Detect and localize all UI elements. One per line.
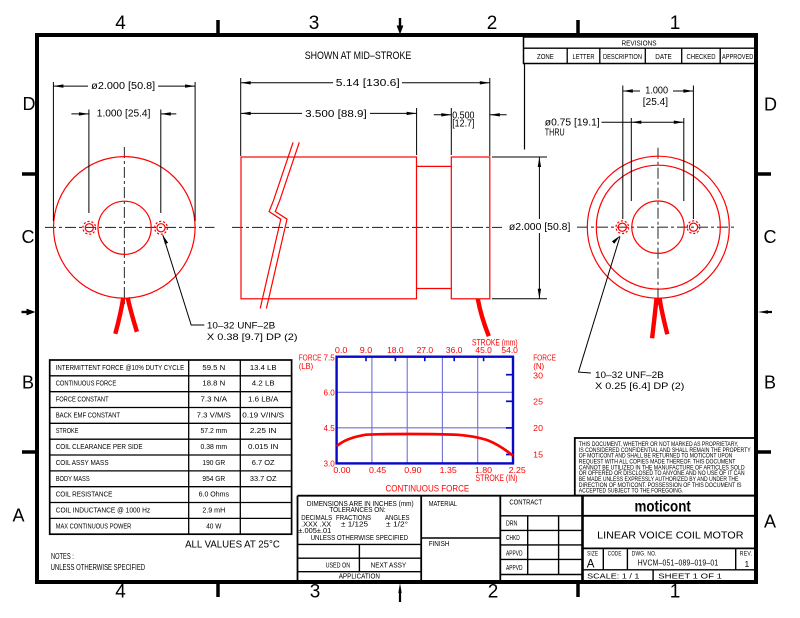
- svg-text:± 1/2°: ± 1/2°: [386, 521, 408, 529]
- svg-text:6.0 Ohms: 6.0 Ohms: [199, 490, 230, 499]
- svg-text:0.38 mm: 0.38 mm: [201, 442, 228, 451]
- svg-text:B: B: [764, 372, 776, 392]
- svg-text:1.6 LB/A: 1.6 LB/A: [248, 395, 279, 404]
- svg-text:5.14 [130.6]: 5.14 [130.6]: [336, 78, 400, 89]
- svg-text:CONTRACT: CONTRACT: [509, 500, 542, 507]
- svg-text:D: D: [764, 95, 777, 115]
- svg-text:1: 1: [745, 559, 750, 569]
- svg-text:BODY MASS: BODY MASS: [56, 474, 90, 483]
- svg-text:20: 20: [533, 424, 543, 433]
- svg-text:STROKE: STROKE: [56, 426, 79, 435]
- svg-text:59.5 N: 59.5 N: [202, 363, 225, 372]
- svg-text:30: 30: [533, 371, 543, 380]
- svg-text:0.90: 0.90: [404, 466, 422, 475]
- svg-text:1: 1: [670, 581, 681, 602]
- svg-text:COIL CLEARANCE PER SIDE: COIL CLEARANCE PER SIDE: [56, 442, 143, 451]
- svg-text:[25.4]: [25.4]: [643, 97, 668, 108]
- svg-text:SHOWN AT MID–STROKE: SHOWN AT MID–STROKE: [305, 50, 412, 62]
- svg-text:BACK EMF CONSTANT: BACK EMF CONSTANT: [56, 410, 121, 419]
- svg-text:57.2 mm: 57.2 mm: [201, 426, 228, 435]
- svg-text:18.0: 18.0: [387, 346, 404, 355]
- svg-text:STROKE (mm): STROKE (mm): [472, 338, 518, 348]
- svg-text:ø2.000 [50.8]: ø2.000 [50.8]: [91, 81, 155, 92]
- svg-text:MATERIAL: MATERIAL: [429, 501, 457, 508]
- svg-text:STROKE (IN): STROKE (IN): [476, 473, 518, 483]
- svg-text:4: 4: [115, 581, 126, 602]
- svg-text:APPROVED: APPROVED: [722, 54, 753, 61]
- svg-text:2: 2: [488, 581, 499, 602]
- svg-text:TOLERANCES ON:: TOLERANCES ON:: [329, 507, 385, 514]
- svg-text:2.25 IN: 2.25 IN: [250, 426, 277, 435]
- svg-text:FINISH: FINISH: [429, 541, 450, 548]
- svg-text:UNLESS OTHERWISE SPECIFIED: UNLESS OTHERWISE SPECIFIED: [311, 535, 409, 542]
- svg-text:ACCEPTED SUBJECT TO THE FOREGO: ACCEPTED SUBJECT TO THE FOREGOING.: [579, 488, 684, 495]
- svg-text:DESCRIPTION: DESCRIPTION: [603, 54, 642, 61]
- svg-text:4.2 LB: 4.2 LB: [252, 379, 275, 388]
- svg-text:THRU: THRU: [545, 128, 565, 139]
- svg-text:C: C: [764, 227, 777, 247]
- svg-text:CHECKED: CHECKED: [687, 54, 716, 61]
- svg-text:13.4 LB: 13.4 LB: [250, 363, 277, 372]
- svg-text:ALL VALUES AT 25°C: ALL VALUES AT 25°C: [185, 538, 280, 550]
- svg-text:CONTINUOUS FORCE: CONTINUOUS FORCE: [386, 483, 470, 493]
- svg-text:27.0: 27.0: [417, 346, 434, 355]
- svg-text:3: 3: [309, 13, 320, 34]
- svg-text:9.0: 9.0: [360, 346, 373, 355]
- svg-text:NOTES :: NOTES :: [51, 552, 74, 561]
- svg-text:7.3 N/A: 7.3 N/A: [201, 395, 228, 404]
- svg-text:10–32 UNF–2B: 10–32 UNF–2B: [207, 320, 275, 331]
- svg-text:B: B: [22, 372, 34, 392]
- svg-text:REVISIONS: REVISIONS: [622, 41, 657, 48]
- svg-text:DRN: DRN: [506, 520, 517, 527]
- svg-text:COIL RESISTANCE: COIL RESISTANCE: [56, 490, 113, 499]
- svg-text:40 W: 40 W: [206, 521, 221, 530]
- svg-text:36.0: 36.0: [446, 346, 463, 355]
- svg-text:7.3 V/M/S: 7.3 V/M/S: [197, 410, 231, 419]
- svg-text:(N): (N): [533, 362, 544, 371]
- svg-text:10–32 UNF–2B: 10–32 UNF–2B: [595, 369, 664, 380]
- svg-text:1.35: 1.35: [440, 466, 458, 475]
- svg-text:1: 1: [670, 13, 681, 34]
- svg-text:C: C: [22, 227, 35, 247]
- svg-text:CHKD: CHKD: [506, 535, 520, 542]
- svg-text:(LB): (LB): [299, 362, 314, 371]
- svg-text:COIL INDUCTANCE @ 1000 Hz: COIL INDUCTANCE @ 1000 Hz: [56, 505, 151, 514]
- svg-text:D: D: [23, 94, 36, 114]
- svg-text:CODE: CODE: [608, 550, 622, 557]
- svg-text:6.0: 6.0: [324, 388, 336, 397]
- svg-text:3.500 [88.9]: 3.500 [88.9]: [305, 109, 367, 120]
- svg-text:2: 2: [487, 13, 498, 34]
- svg-text:1.000 [25.4]: 1.000 [25.4]: [97, 109, 151, 120]
- svg-text:DATE: DATE: [655, 54, 672, 61]
- svg-text:ø2.000 [50.8]: ø2.000 [50.8]: [509, 222, 571, 233]
- svg-text:954 GR: 954 GR: [202, 474, 225, 483]
- svg-text:LETTER: LETTER: [573, 54, 595, 61]
- svg-text:4: 4: [115, 13, 126, 34]
- svg-text:SCALE: 1 / 1: SCALE: 1 / 1: [587, 571, 639, 580]
- svg-text:25: 25: [533, 397, 543, 406]
- svg-text:6.7 OZ: 6.7 OZ: [252, 458, 275, 467]
- svg-text:moticont: moticont: [635, 499, 691, 516]
- svg-text:15: 15: [533, 451, 543, 460]
- svg-text:UNLESS OTHERWISE SPECIFIED: UNLESS OTHERWISE SPECIFIED: [51, 563, 146, 572]
- svg-text:33.7 OZ: 33.7 OZ: [250, 474, 277, 483]
- svg-text:± 1/125: ± 1/125: [341, 522, 368, 529]
- svg-text:7.5: 7.5: [324, 353, 336, 362]
- svg-text:190 GR: 190 GR: [202, 458, 225, 467]
- svg-text:A: A: [587, 559, 595, 571]
- svg-text:SIZE: SIZE: [587, 550, 598, 557]
- svg-text:COIL ASSY MASS: COIL ASSY MASS: [56, 458, 109, 467]
- svg-text:0.00: 0.00: [333, 466, 351, 475]
- svg-text:CONTINUOUS FORCE: CONTINUOUS FORCE: [56, 379, 117, 388]
- svg-text:USED ON: USED ON: [326, 563, 351, 570]
- svg-text:X 0.25 [6.4] DP (2): X 0.25 [6.4] DP (2): [595, 380, 684, 391]
- svg-text:[12.7]: [12.7]: [452, 118, 474, 129]
- svg-text:A: A: [764, 511, 776, 531]
- svg-text:A: A: [12, 506, 24, 526]
- svg-text:0.015 IN: 0.015 IN: [248, 442, 278, 451]
- svg-text:FORCE CONSTANT: FORCE CONSTANT: [56, 395, 109, 404]
- svg-text:X 0.38 [9.7] DP (2): X 0.38 [9.7] DP (2): [207, 331, 298, 342]
- svg-text:2.9 mH: 2.9 mH: [202, 505, 225, 514]
- svg-text:LINEAR VOICE COIL MOTOR: LINEAR VOICE COIL MOTOR: [597, 530, 743, 541]
- svg-text:4.5: 4.5: [324, 424, 336, 433]
- svg-text:NEXT ASSY: NEXT ASSY: [371, 563, 407, 570]
- svg-text:APPVD: APPVD: [506, 550, 523, 557]
- svg-text:HVCM–051–089–019–01: HVCM–051–089–019–01: [638, 557, 719, 567]
- svg-text:REV.: REV.: [740, 550, 752, 557]
- svg-text:0.45: 0.45: [369, 466, 387, 475]
- svg-text:APPLICATION: APPLICATION: [339, 574, 380, 581]
- svg-text:1.000: 1.000: [645, 86, 668, 97]
- svg-text:ZONE: ZONE: [537, 54, 554, 61]
- svg-text:MAX CONTINUOUS POWER: MAX CONTINUOUS POWER: [56, 521, 132, 530]
- svg-text:0.0: 0.0: [335, 346, 348, 355]
- svg-text:SHEET 1 OF 1: SHEET 1 OF 1: [658, 571, 722, 580]
- svg-text:APPVD: APPVD: [506, 565, 523, 572]
- svg-text:18.8 N: 18.8 N: [202, 379, 225, 388]
- svg-text:INTERMITTENT FORCE @10% DUTY C: INTERMITTENT FORCE @10% DUTY CYCLE: [56, 363, 185, 372]
- svg-text:3: 3: [310, 581, 321, 602]
- svg-text:0.19 V/IN/S: 0.19 V/IN/S: [242, 410, 284, 419]
